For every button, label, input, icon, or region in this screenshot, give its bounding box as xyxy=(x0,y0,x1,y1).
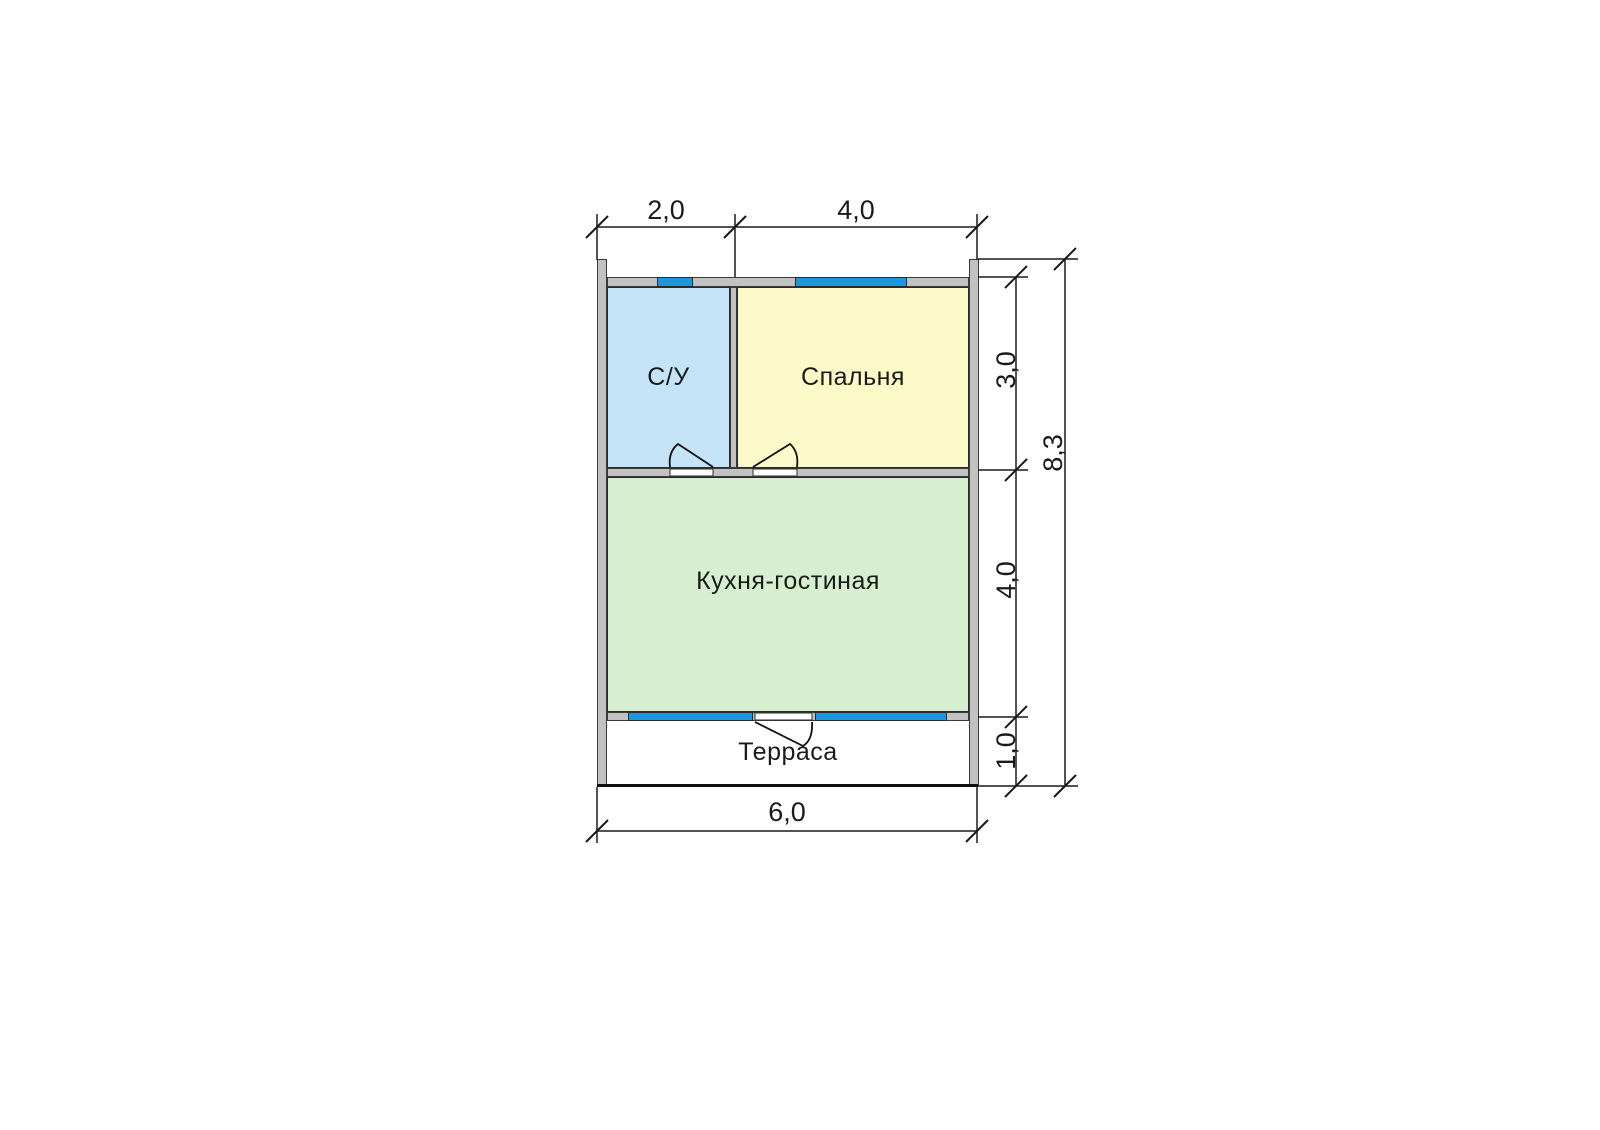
dim-label-right-3_0: 3,0 xyxy=(990,325,1022,415)
door-swing-bathroom xyxy=(670,444,713,467)
door-openings xyxy=(670,469,812,720)
dim-label-bottom-6_0: 6,0 xyxy=(742,796,832,828)
door-swing-terrace xyxy=(755,722,812,746)
dim-label-top-4_0: 4,0 xyxy=(811,194,901,226)
door-swing-bedroom xyxy=(753,444,797,467)
dim-label-total-8_3: 8,3 xyxy=(1037,408,1069,498)
floor-plan-canvas: С/У Спальня Кухня-гостиная Терраса xyxy=(0,0,1600,1130)
dim-label-right-1_0: 1,0 xyxy=(990,706,1022,796)
dim-label-right-4_0: 4,0 xyxy=(990,535,1022,625)
dimension-and-door-graphics xyxy=(0,0,1600,1130)
dim-label-top-2_0: 2,0 xyxy=(621,194,711,226)
door-swings xyxy=(670,444,812,746)
